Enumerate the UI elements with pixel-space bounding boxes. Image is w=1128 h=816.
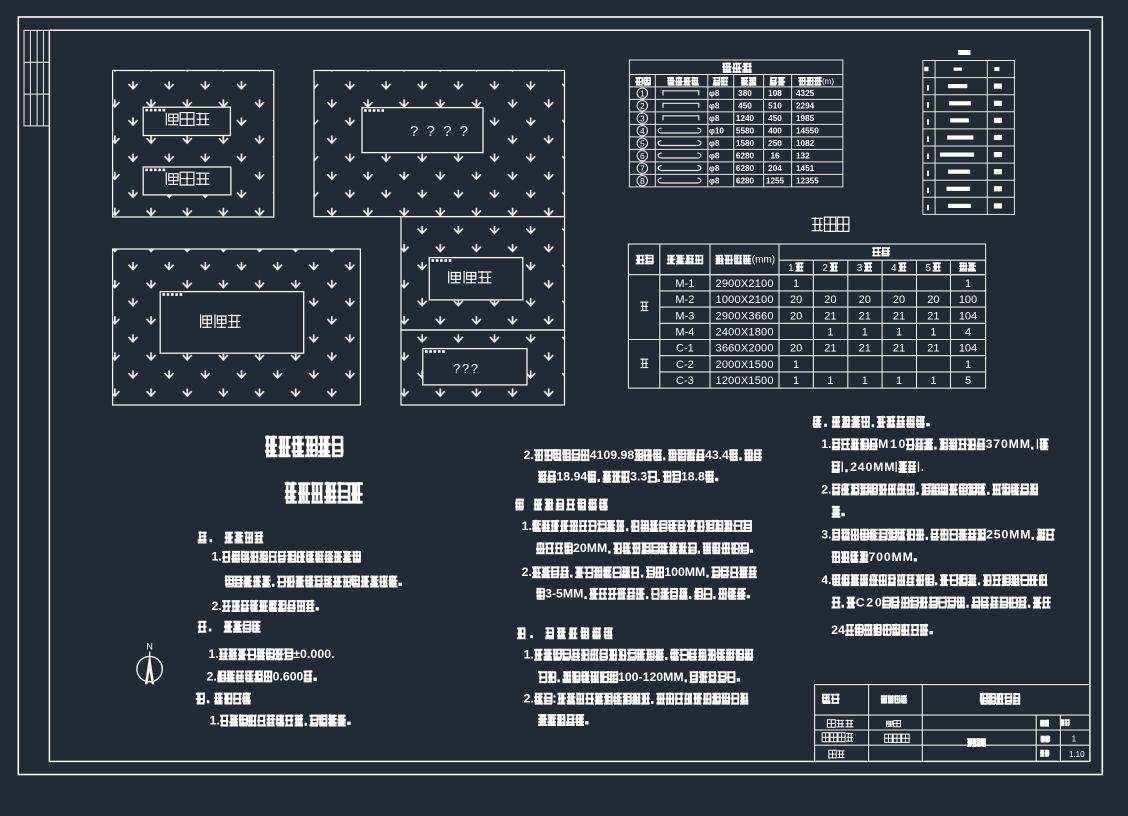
svg-text:2294: 2294 <box>796 102 815 111</box>
svg-text:M-1: M-1 <box>675 278 694 290</box>
svg-text:2.: 2. <box>212 599 222 613</box>
svg-text:5: 5 <box>640 138 645 148</box>
svg-text:3: 3 <box>640 113 645 123</box>
svg-text:φ10: φ10 <box>709 127 724 136</box>
svg-text:φ8: φ8 <box>709 89 720 98</box>
svg-text:1.: 1. <box>212 550 222 564</box>
svg-text:8: 8 <box>640 176 645 186</box>
svg-text:1.10: 1.10 <box>1069 750 1085 759</box>
svg-text:2900X3660: 2900X3660 <box>716 310 774 322</box>
svg-text:1.: 1. <box>210 713 220 727</box>
svg-text:1: 1 <box>896 375 902 387</box>
svg-text:1985: 1985 <box>796 114 815 123</box>
svg-text:104: 104 <box>959 343 977 355</box>
svg-text:3.3: 3.3 <box>630 470 647 484</box>
svg-text:4325: 4325 <box>796 89 815 98</box>
svg-text:1: 1 <box>793 375 799 387</box>
svg-text:φ8: φ8 <box>709 102 720 111</box>
svg-text:24: 24 <box>831 623 845 637</box>
svg-text:3: 3 <box>857 263 863 274</box>
svg-text:21: 21 <box>859 343 871 355</box>
svg-text:5: 5 <box>965 375 971 387</box>
svg-text:21: 21 <box>927 343 939 355</box>
svg-text:φ8: φ8 <box>709 177 720 186</box>
svg-text:(m): (m) <box>822 77 834 86</box>
svg-text:φ8: φ8 <box>709 164 720 173</box>
svg-text:7: 7 <box>640 163 645 173</box>
svg-text:700MM: 700MM <box>869 550 913 564</box>
svg-text:2: 2 <box>822 263 828 274</box>
svg-text:6280: 6280 <box>736 164 755 173</box>
svg-text:100-120MM: 100-120MM <box>618 670 684 684</box>
svg-text:φ8: φ8 <box>709 114 720 123</box>
svg-text:2.: 2. <box>821 482 831 496</box>
svg-text:21: 21 <box>893 343 905 355</box>
svg-text:370MM: 370MM <box>986 437 1030 451</box>
svg-text:2.: 2. <box>524 448 534 462</box>
svg-text:4: 4 <box>891 263 897 274</box>
svg-text:20: 20 <box>790 310 802 322</box>
svg-text:1: 1 <box>965 278 971 290</box>
svg-text:1.: 1. <box>209 647 219 661</box>
svg-text:φ8: φ8 <box>709 152 720 161</box>
svg-text:450: 450 <box>738 102 752 111</box>
svg-text:2: 2 <box>640 101 645 111</box>
svg-text:5: 5 <box>925 263 931 274</box>
svg-text:(mm): (mm) <box>752 255 775 266</box>
svg-text:6280: 6280 <box>736 152 755 161</box>
svg-text:1: 1 <box>896 327 902 339</box>
svg-text:C-3: C-3 <box>676 375 694 387</box>
svg-text:.: . <box>921 460 924 474</box>
svg-text:2.: 2. <box>207 669 217 683</box>
svg-text:1200X1500: 1200X1500 <box>716 375 774 387</box>
svg-text:1: 1 <box>793 359 799 371</box>
svg-text:132: 132 <box>796 152 810 161</box>
svg-text:1000X2100: 1000X2100 <box>716 294 774 306</box>
svg-text:M-2: M-2 <box>675 294 694 306</box>
svg-text:20: 20 <box>790 343 802 355</box>
svg-text:450: 450 <box>768 114 782 123</box>
svg-text:1.: 1. <box>522 519 532 533</box>
svg-text:1: 1 <box>1072 734 1077 743</box>
svg-text:20: 20 <box>893 294 905 306</box>
svg-text:2.: 2. <box>522 565 532 579</box>
svg-text:12355: 12355 <box>796 177 819 186</box>
svg-text:250: 250 <box>768 139 782 148</box>
svg-text:204: 204 <box>768 164 782 173</box>
svg-text:C-1: C-1 <box>676 343 694 355</box>
svg-text:21: 21 <box>893 310 905 322</box>
svg-text:5580: 5580 <box>736 127 755 136</box>
svg-text:6280: 6280 <box>736 177 755 186</box>
svg-text:240MM: 240MM <box>850 460 894 474</box>
svg-text:2900X2100: 2900X2100 <box>716 278 774 290</box>
svg-text:1: 1 <box>788 263 794 274</box>
svg-text:M-3: M-3 <box>675 310 694 322</box>
svg-text:3.: 3. <box>821 528 831 542</box>
svg-text:43.4: 43.4 <box>705 448 729 462</box>
svg-text:104: 104 <box>959 310 977 322</box>
svg-text:2.: 2. <box>524 692 534 706</box>
svg-text:4: 4 <box>965 327 971 339</box>
svg-text:1240: 1240 <box>736 114 755 123</box>
svg-text:N: N <box>146 642 153 652</box>
svg-text:M10: M10 <box>878 437 905 451</box>
svg-text:100: 100 <box>959 294 977 306</box>
svg-text:1: 1 <box>930 327 936 339</box>
svg-text:21: 21 <box>824 310 836 322</box>
svg-text:1: 1 <box>827 375 833 387</box>
svg-text:1.: 1. <box>821 437 831 451</box>
svg-text:C20: C20 <box>856 595 882 609</box>
svg-text:21: 21 <box>927 310 939 322</box>
svg-text:1082: 1082 <box>796 139 815 148</box>
svg-text:±0.000.: ±0.000. <box>293 647 334 661</box>
svg-text:M-4: M-4 <box>675 327 694 339</box>
svg-text:4: 4 <box>640 126 645 136</box>
svg-text:1.: 1. <box>524 648 534 662</box>
svg-text:1: 1 <box>862 375 868 387</box>
svg-text:1: 1 <box>862 327 868 339</box>
svg-text:21: 21 <box>824 343 836 355</box>
svg-text:2000X1500: 2000X1500 <box>716 359 774 371</box>
svg-text:20MM: 20MM <box>573 541 607 555</box>
svg-text:108: 108 <box>768 89 782 98</box>
svg-text:0.600: 0.600 <box>273 669 304 683</box>
svg-text:16: 16 <box>770 152 780 161</box>
svg-text:1: 1 <box>930 375 936 387</box>
svg-text:3660X2000: 3660X2000 <box>716 343 774 355</box>
svg-text:???: ??? <box>453 361 478 376</box>
svg-text:1: 1 <box>640 88 645 98</box>
svg-text:φ8: φ8 <box>709 139 720 148</box>
svg-text:1255: 1255 <box>766 177 785 186</box>
svg-text:18.8: 18.8 <box>681 470 705 484</box>
svg-text:C-2: C-2 <box>676 359 694 371</box>
svg-text:100MM: 100MM <box>664 565 705 579</box>
svg-text:21: 21 <box>859 310 871 322</box>
svg-text:1580: 1580 <box>736 139 755 148</box>
svg-text:20: 20 <box>824 294 836 306</box>
svg-text:20: 20 <box>790 294 802 306</box>
svg-text:1: 1 <box>827 327 833 339</box>
svg-text:20: 20 <box>859 294 871 306</box>
svg-text:250MM: 250MM <box>986 528 1030 542</box>
svg-text:1: 1 <box>965 359 971 371</box>
svg-text:4109.98: 4109.98 <box>590 448 635 462</box>
svg-text:1451: 1451 <box>796 164 815 173</box>
svg-text:4.: 4. <box>821 573 831 587</box>
svg-text:2400X1800: 2400X1800 <box>716 327 774 339</box>
svg-text:3-5MM: 3-5MM <box>545 587 583 601</box>
svg-text:1: 1 <box>793 278 799 290</box>
svg-text:6: 6 <box>640 151 645 161</box>
svg-text:20: 20 <box>927 294 939 306</box>
svg-text:14550: 14550 <box>796 127 819 136</box>
svg-text:510: 510 <box>768 102 782 111</box>
svg-text:18.94: 18.94 <box>556 470 587 484</box>
svg-text:400: 400 <box>768 127 782 136</box>
svg-text:380: 380 <box>738 89 752 98</box>
